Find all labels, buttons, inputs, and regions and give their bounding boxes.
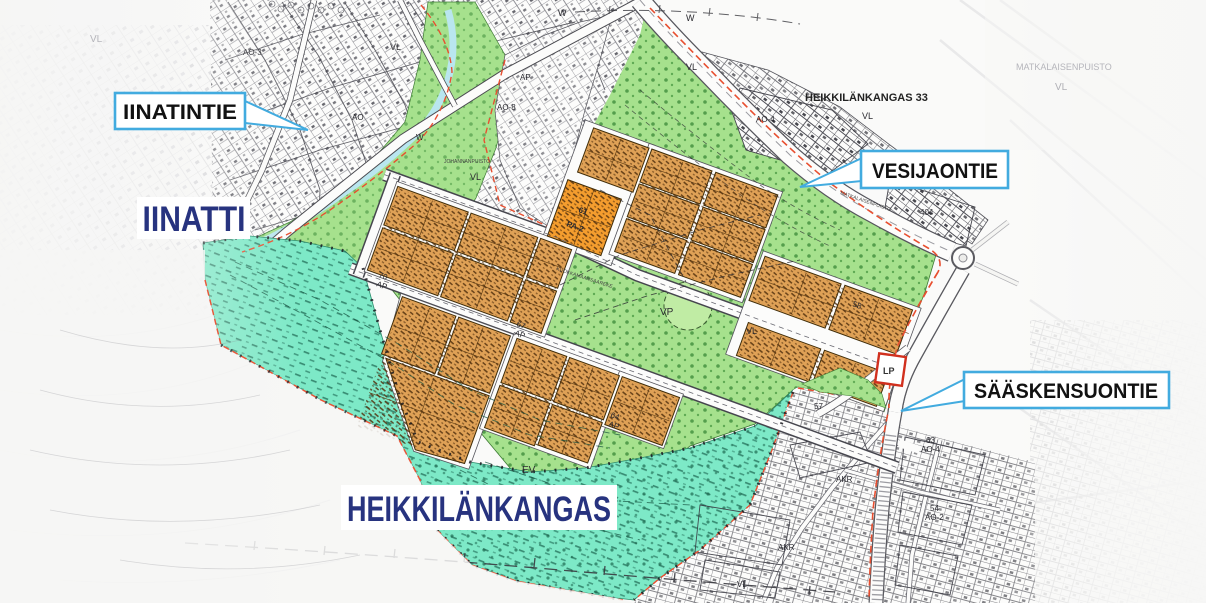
svg-text:AP: AP bbox=[520, 73, 531, 82]
svg-text:VL: VL bbox=[1055, 82, 1068, 93]
svg-text:VESIJAONTIE: VESIJAONTIE bbox=[872, 160, 998, 183]
svg-text:VL: VL bbox=[470, 172, 481, 182]
svg-text:AKR: AKR bbox=[836, 475, 853, 484]
svg-text:W: W bbox=[416, 133, 424, 142]
svg-text:404: 404 bbox=[920, 208, 934, 217]
svg-text:63: 63 bbox=[926, 436, 935, 445]
svg-text:HEIKKILÄNKANGAS: HEIKKILÄNKANGAS bbox=[347, 490, 611, 529]
svg-text:VL: VL bbox=[737, 580, 747, 589]
svg-text:IINATTI: IINATTI bbox=[143, 200, 246, 239]
svg-text:VL: VL bbox=[862, 111, 873, 121]
svg-text:W: W bbox=[558, 8, 567, 18]
svg-text:AO: AO bbox=[352, 113, 364, 122]
svg-text:AKR: AKR bbox=[778, 543, 795, 552]
svg-text:W: W bbox=[686, 13, 695, 23]
svg-text:JOHANNANPUISTO: JOHANNANPUISTO bbox=[444, 159, 490, 165]
svg-text:EV: EV bbox=[522, 465, 536, 476]
svg-text:HEIKKILÄNKANGAS 33: HEIKKILÄNKANGAS 33 bbox=[805, 91, 928, 104]
svg-text:AO-2: AO-2 bbox=[925, 513, 944, 522]
svg-text:AO-8: AO-8 bbox=[497, 103, 516, 112]
svg-text:VL: VL bbox=[686, 62, 697, 72]
svg-text:VL: VL bbox=[390, 42, 401, 52]
svg-text:IINATINTIE: IINATINTIE bbox=[123, 101, 237, 124]
svg-text:VP: VP bbox=[660, 307, 674, 318]
svg-text:LP: LP bbox=[883, 366, 895, 376]
svg-text:SÄÄSKENSUONTIE: SÄÄSKENSUONTIE bbox=[974, 380, 1158, 403]
svg-text:54: 54 bbox=[930, 504, 939, 513]
svg-text:AO-4: AO-4 bbox=[756, 115, 775, 124]
svg-text:MATKALAISENPUISTO: MATKALAISENPUISTO bbox=[1016, 62, 1112, 72]
svg-text:AO-4: AO-4 bbox=[921, 445, 940, 454]
svg-text:VL: VL bbox=[746, 326, 757, 336]
svg-text:VL: VL bbox=[90, 34, 103, 45]
svg-text:57: 57 bbox=[814, 402, 823, 411]
